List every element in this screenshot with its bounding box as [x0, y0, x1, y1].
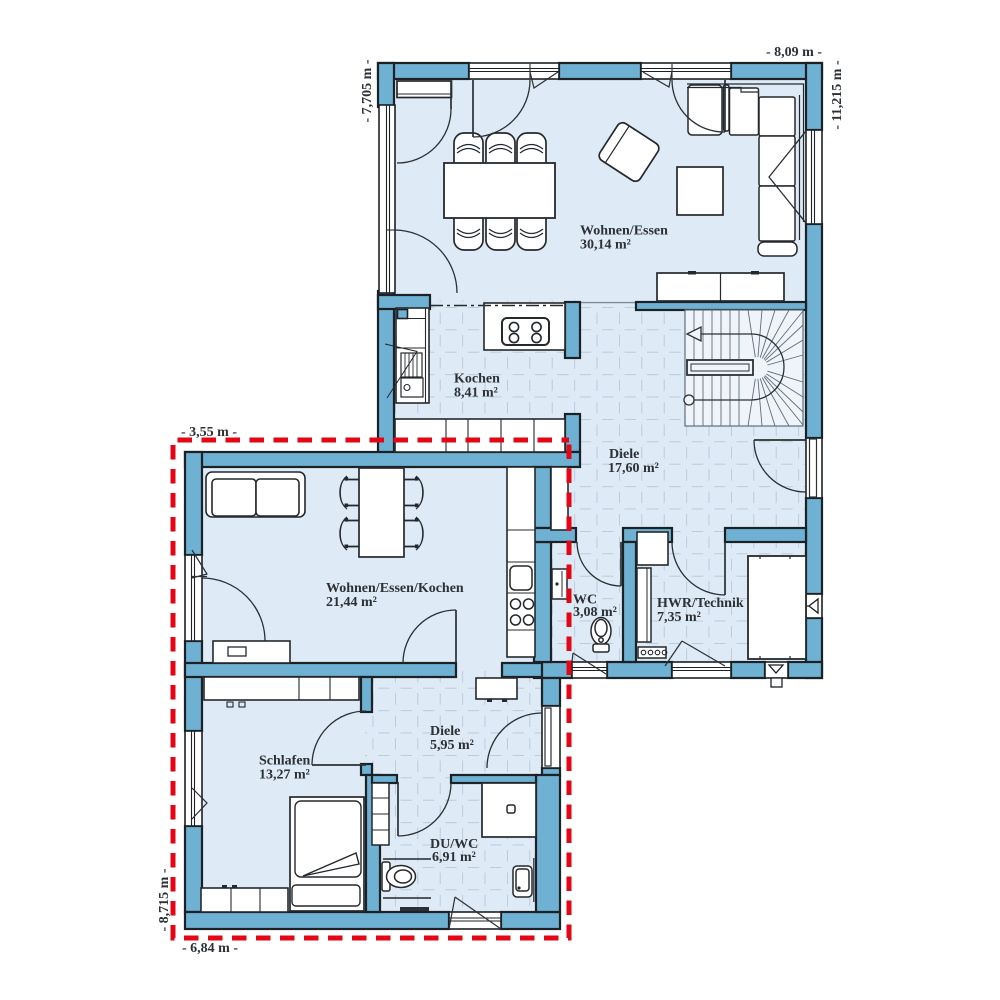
- svg-text:- 11,215 m -: - 11,215 m -: [830, 60, 845, 130]
- svg-text:- 8,715 m -: - 8,715 m -: [157, 868, 172, 931]
- svg-text:17,60 m²: 17,60 m²: [608, 461, 659, 476]
- svg-text:Wohnen/Essen/Kochen: Wohnen/Essen/Kochen: [326, 581, 464, 596]
- svg-text:- 7,705 m -: - 7,705 m -: [360, 59, 375, 122]
- svg-text:13,27 m²: 13,27 m²: [259, 768, 310, 783]
- svg-text:21,44 m²: 21,44 m²: [326, 595, 377, 610]
- svg-text:30,14 m²: 30,14 m²: [580, 238, 631, 253]
- svg-text:7,35 m²: 7,35 m²: [657, 610, 701, 625]
- svg-text:6,91 m²: 6,91 m²: [432, 850, 476, 865]
- svg-text:- 3,55 m -: - 3,55 m -: [181, 425, 237, 440]
- svg-text:5,95 m²: 5,95 m²: [430, 738, 474, 753]
- svg-text:- 6,84 m -: - 6,84 m -: [182, 941, 238, 956]
- svg-text:Schlafen: Schlafen: [259, 754, 311, 769]
- svg-text:Wohnen/Essen: Wohnen/Essen: [580, 224, 668, 239]
- svg-text:Kochen: Kochen: [454, 372, 500, 387]
- svg-text:Diele: Diele: [430, 724, 460, 739]
- svg-text:- 8,09 m -: - 8,09 m -: [766, 45, 822, 60]
- svg-text:3,08 m²: 3,08 m²: [573, 605, 617, 620]
- svg-text:8,41 m²: 8,41 m²: [454, 386, 498, 401]
- svg-text:HWR/Technik: HWR/Technik: [657, 596, 744, 611]
- svg-text:Diele: Diele: [609, 447, 639, 462]
